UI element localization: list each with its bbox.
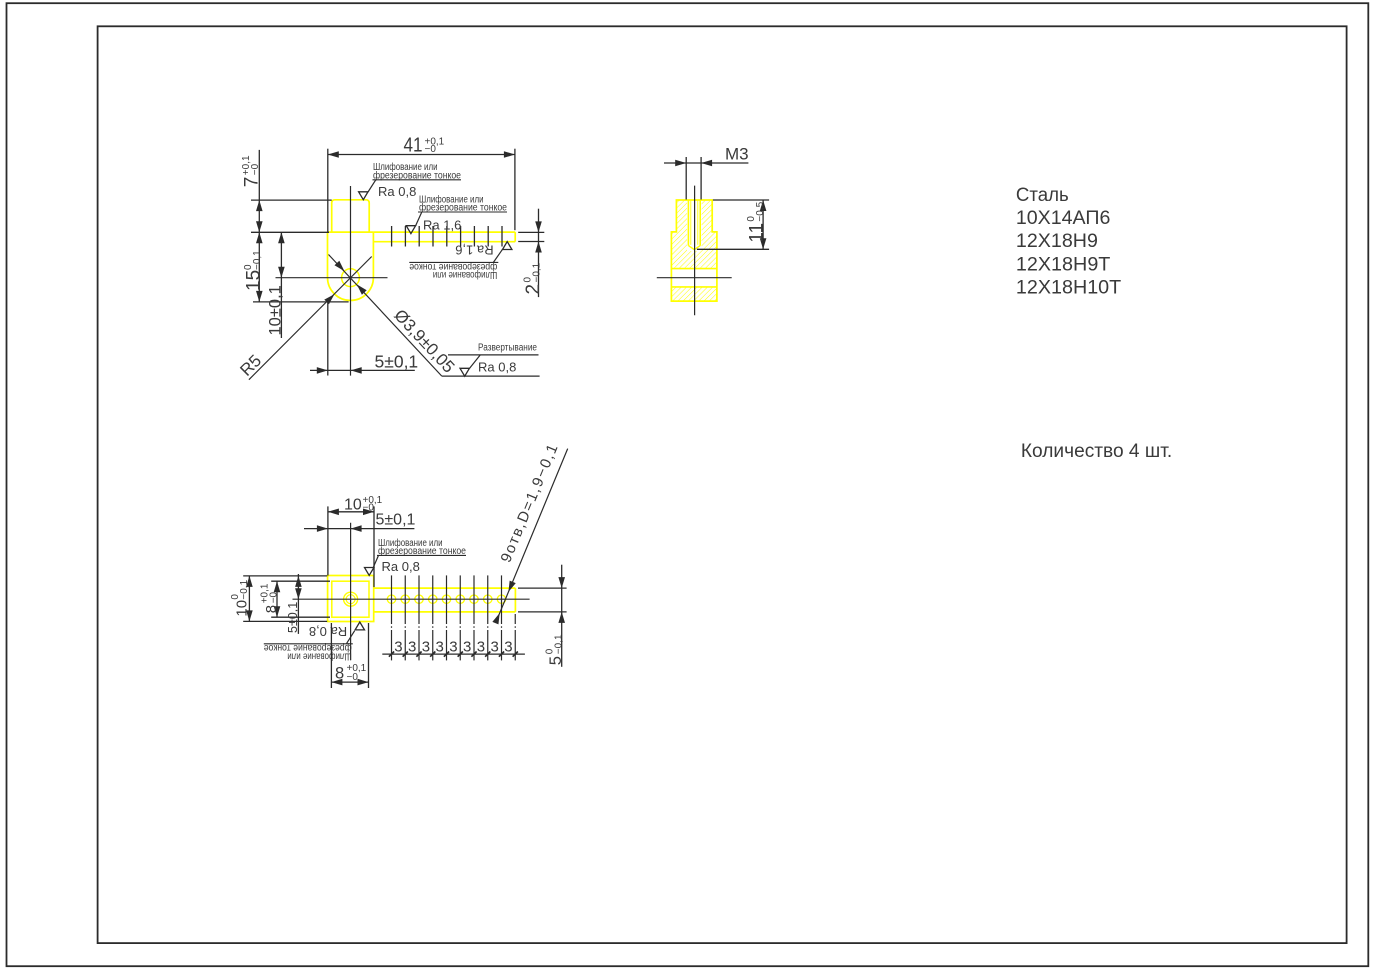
svg-text:12Х18Н10Т: 12Х18Н10Т — [1016, 278, 1122, 299]
svg-text:−0,5: −0,5 — [755, 201, 766, 221]
svg-text:R5: R5 — [236, 351, 265, 380]
svg-text:41: 41 — [404, 135, 423, 157]
svg-text:Ra 0,8: Ra 0,8 — [378, 184, 416, 199]
svg-text:8: 8 — [335, 665, 344, 683]
svg-text:3: 3 — [422, 639, 430, 656]
svg-text:Ra 0,8: Ra 0,8 — [382, 559, 420, 574]
svg-text:9отв,D=1,9−0,1: 9отв,D=1,9−0,1 — [497, 440, 562, 565]
svg-text:3: 3 — [449, 639, 457, 656]
svg-text:−0: −0 — [363, 503, 375, 514]
svg-text:Ra 0,8: Ra 0,8 — [478, 359, 516, 374]
svg-text:5±0,1: 5±0,1 — [376, 511, 416, 528]
svg-text:5: 5 — [547, 656, 565, 665]
svg-text:10: 10 — [344, 496, 362, 513]
svg-text:5±0,1: 5±0,1 — [286, 602, 300, 633]
svg-text:12Х18Н9: 12Х18Н9 — [1016, 231, 1098, 252]
svg-text:8: 8 — [263, 605, 280, 613]
svg-text:М3: М3 — [725, 145, 749, 164]
svg-text:−0: −0 — [425, 144, 437, 155]
svg-text:3: 3 — [408, 639, 416, 656]
svg-text:7: 7 — [241, 177, 262, 188]
svg-text:3: 3 — [504, 639, 512, 656]
svg-text:10Х14АП6: 10Х14АП6 — [1016, 208, 1111, 229]
svg-text:Ra 1,6: Ra 1,6 — [455, 242, 493, 257]
svg-text:3: 3 — [463, 639, 471, 656]
svg-text:−0,1: −0,1 — [532, 262, 543, 282]
svg-text:−0,1: −0,1 — [554, 634, 565, 654]
svg-text:3: 3 — [490, 639, 498, 656]
svg-text:−0: −0 — [269, 591, 280, 603]
svg-text:Развертывание: Развертывание — [478, 343, 537, 354]
svg-text:10±0,1: 10±0,1 — [267, 285, 285, 335]
svg-text:3: 3 — [394, 639, 402, 656]
svg-text:Ra 0,8: Ra 0,8 — [309, 624, 347, 639]
svg-text:12Х18Н9Т: 12Х18Н9Т — [1016, 254, 1111, 275]
svg-text:−0,1: −0,1 — [239, 579, 250, 599]
svg-text:15: 15 — [243, 270, 264, 291]
svg-text:−0,1: −0,1 — [252, 250, 263, 270]
svg-text:10: 10 — [234, 600, 251, 617]
svg-text:5±0,1: 5±0,1 — [375, 352, 419, 372]
svg-text:11: 11 — [747, 223, 768, 243]
svg-text:3: 3 — [435, 639, 443, 656]
svg-text:−0: −0 — [250, 163, 261, 175]
svg-text:Сталь: Сталь — [1016, 185, 1069, 206]
svg-text:3: 3 — [477, 639, 485, 656]
svg-text:2: 2 — [523, 284, 544, 295]
svg-text:Количество 4 шт.: Количество 4 шт. — [1021, 440, 1172, 462]
svg-text:Ra 1,6: Ra 1,6 — [423, 217, 461, 232]
svg-text:−0: −0 — [347, 672, 359, 683]
